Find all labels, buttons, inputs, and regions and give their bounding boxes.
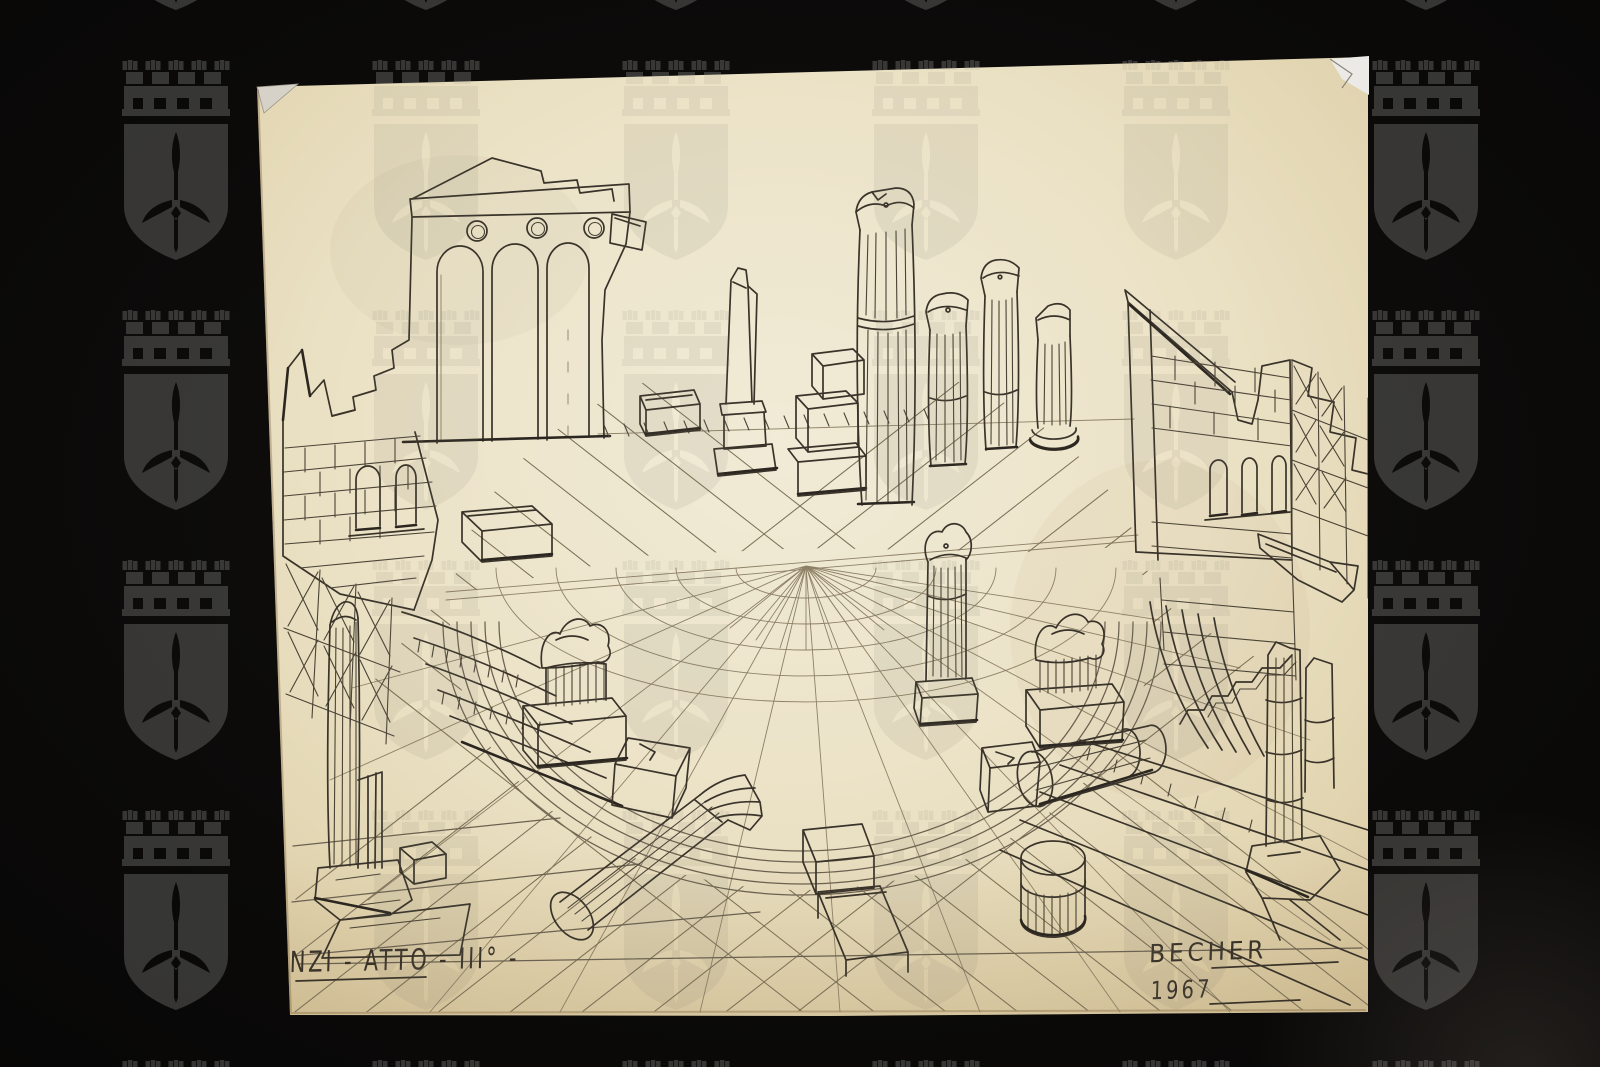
screenshot-root: RIENZI - ATTO - III° - BECHER 1967 [0, 0, 1600, 1067]
watermark-layer-over [0, 0, 1600, 1067]
artwork-photo: RIENZI - ATTO - III° - BECHER 1967 [0, 0, 1600, 1067]
